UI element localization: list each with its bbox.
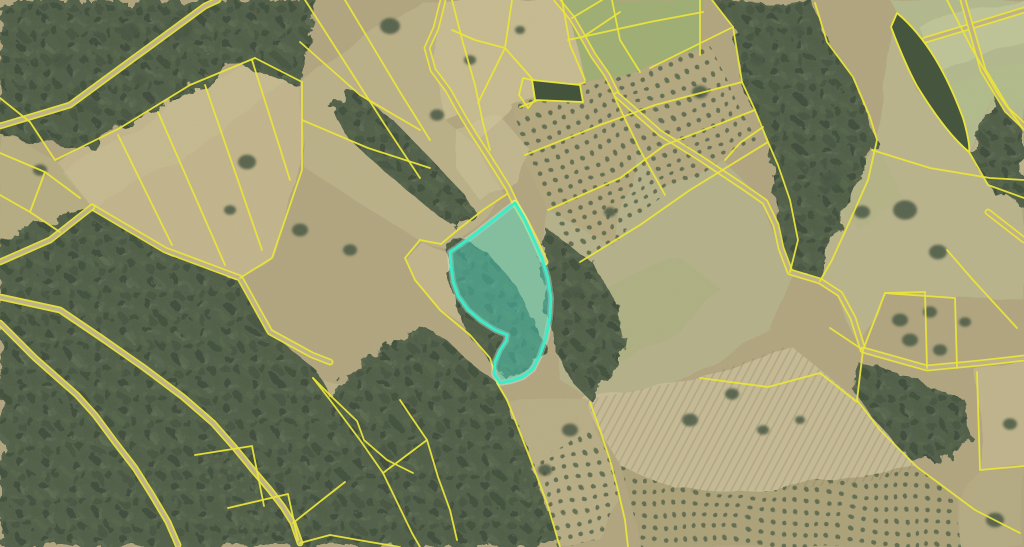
map-viewport[interactable] <box>0 0 1024 547</box>
cadastral-map-canvas[interactable] <box>0 0 1024 547</box>
